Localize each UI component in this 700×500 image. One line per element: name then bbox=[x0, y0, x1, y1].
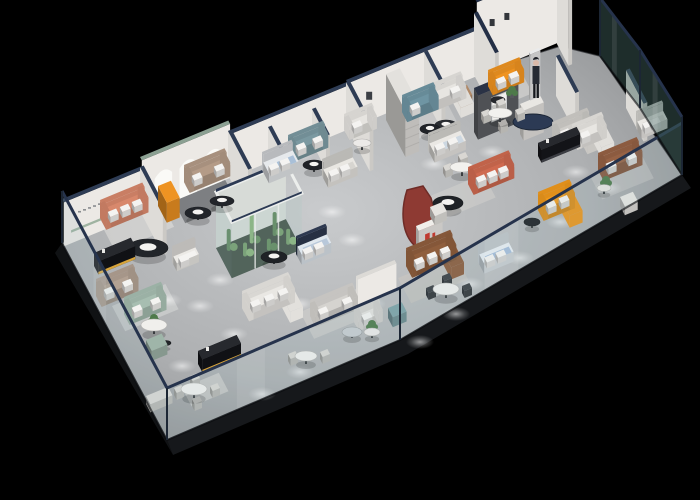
spotlight-pool-23 bbox=[206, 273, 234, 287]
spotlight-pool-18 bbox=[186, 299, 214, 313]
spotlight-pool-9 bbox=[406, 335, 434, 349]
spotlight-pool-21 bbox=[562, 165, 590, 179]
showroom-render-stage bbox=[0, 0, 700, 500]
spotlight-pool-2 bbox=[318, 205, 346, 219]
arch-room-table-2 bbox=[210, 196, 234, 213]
black-coffee-table-mid bbox=[261, 251, 287, 270]
spotlight-pool-19 bbox=[168, 359, 196, 373]
person-cutout bbox=[529, 48, 540, 101]
teal-room-table bbox=[303, 160, 325, 177]
showroom-isometric-render bbox=[0, 0, 700, 500]
arch-room-table-1 bbox=[185, 207, 211, 226]
spotlight-pool-4 bbox=[338, 233, 366, 247]
